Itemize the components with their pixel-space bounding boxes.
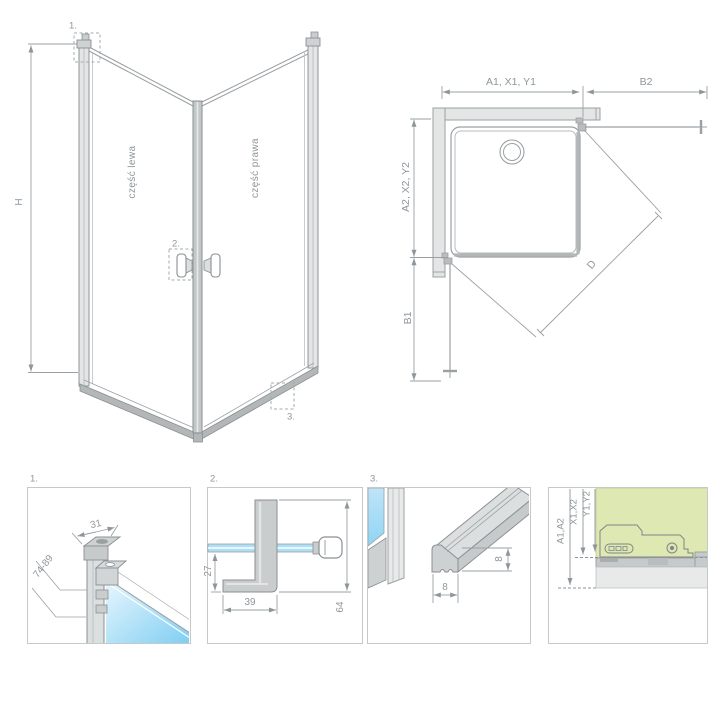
line-art-layer [0,0,720,720]
panel-2-label: 2. [210,474,218,484]
dim-width-right-label: B2 [640,77,653,88]
left-wall [433,108,445,277]
wall-area [596,488,708,558]
top-view-drawing [410,86,707,381]
technical-drawing-page: H część lewa część prawa 1. 2. 3. A1, X1… [0,0,720,720]
dim-a-label: A1,A2 [556,518,566,544]
perspective-enclosure-drawing [28,32,320,442]
dim-depth-upper-label: A2, X2, Y2 [401,162,412,212]
height-dim-label: H [15,198,25,205]
height-dimension [28,44,78,373]
right-door-open [576,118,707,213]
dim-handle-depth: 39 [244,598,255,608]
dim-width-left-label: A1, X1, Y1 [486,77,536,88]
right-door-handle [204,254,220,277]
detail-marker-2: 2. [172,239,180,249]
dim-depth-lower-label: B1 [403,312,414,325]
dim-rail-height: 8 [495,556,505,562]
panel-1-label: 1. [30,474,38,484]
dim-x-label: X1,X2 [569,499,579,525]
detail-marker-3: 3. [287,412,295,422]
left-door-handle [177,254,192,277]
glass-top-edges [89,45,318,106]
detail-marker-boxes [74,33,294,409]
left-part-label: część lewa [128,146,138,199]
dim-rail-width: 8 [442,583,448,593]
dim-handle-drop: 27 [204,565,214,576]
panel-3-label: 3. [370,474,378,484]
dim-handle-height: 64 [336,601,346,612]
dim-y-label: Y1,Y2 [582,491,592,517]
center-post [193,101,202,433]
top-wall [433,108,600,120]
detail-marker-1: 1. [69,21,77,31]
right-part-label: część prawa [251,138,261,198]
bottom-door-open [442,253,536,378]
shower-tray [451,127,580,257]
left-wall-profile [77,34,91,386]
right-wall-profile [306,32,320,368]
